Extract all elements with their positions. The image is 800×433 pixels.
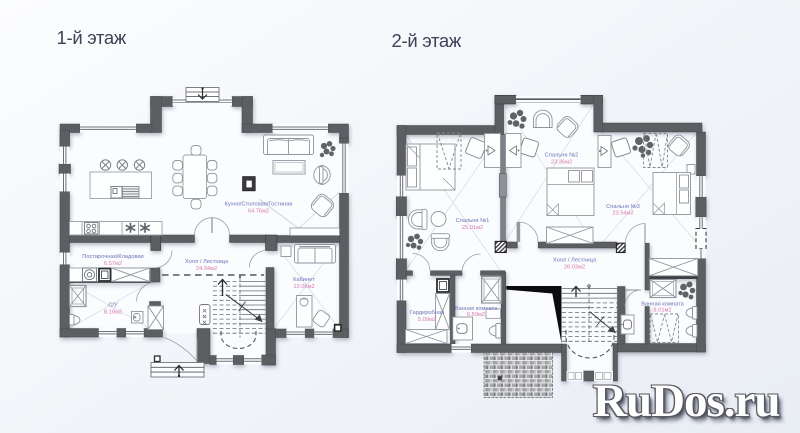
svg-text:Спальня №3: Спальня №3 — [606, 204, 640, 210]
svg-text:8.01м2: 8.01м2 — [653, 308, 671, 314]
svg-text:64.76м2: 64.76м2 — [248, 209, 269, 215]
svg-text:Холл / Лестница: Холл / Лестница — [553, 258, 597, 264]
svg-text:С/У: С/У — [108, 303, 118, 309]
svg-text:Гардеробная: Гардеробная — [410, 310, 444, 316]
svg-text:Постирочная/Кладовая: Постирочная/Кладовая — [82, 254, 143, 260]
svg-text:6.59м2: 6.59м2 — [467, 312, 485, 318]
svg-text:13.06м2: 13.06м2 — [293, 284, 314, 290]
svg-text:25.01м2: 25.01м2 — [462, 225, 483, 231]
svg-text:Кухня/Столовая/Гостиная: Кухня/Столовая/Гостиная — [225, 202, 293, 208]
svg-text:23.54м2: 23.54м2 — [612, 211, 633, 217]
svg-text:26.03м2: 26.03м2 — [564, 265, 585, 271]
svg-text:Спальня №2: Спальня №2 — [545, 153, 579, 159]
svg-text:23.36м2: 23.36м2 — [551, 160, 572, 166]
svg-text:Холл / Лестница: Холл / Лестница — [185, 259, 229, 265]
svg-text:Спальня №1: Спальня №1 — [456, 218, 490, 224]
svg-text:5.09м2: 5.09м2 — [418, 317, 436, 323]
svg-text:24.34м2: 24.34м2 — [196, 266, 217, 272]
svg-text:Кабинет: Кабинет — [293, 277, 315, 283]
svg-text:8.10м2: 8.10м2 — [104, 310, 122, 316]
svg-text:6.57м2: 6.57м2 — [104, 261, 122, 267]
